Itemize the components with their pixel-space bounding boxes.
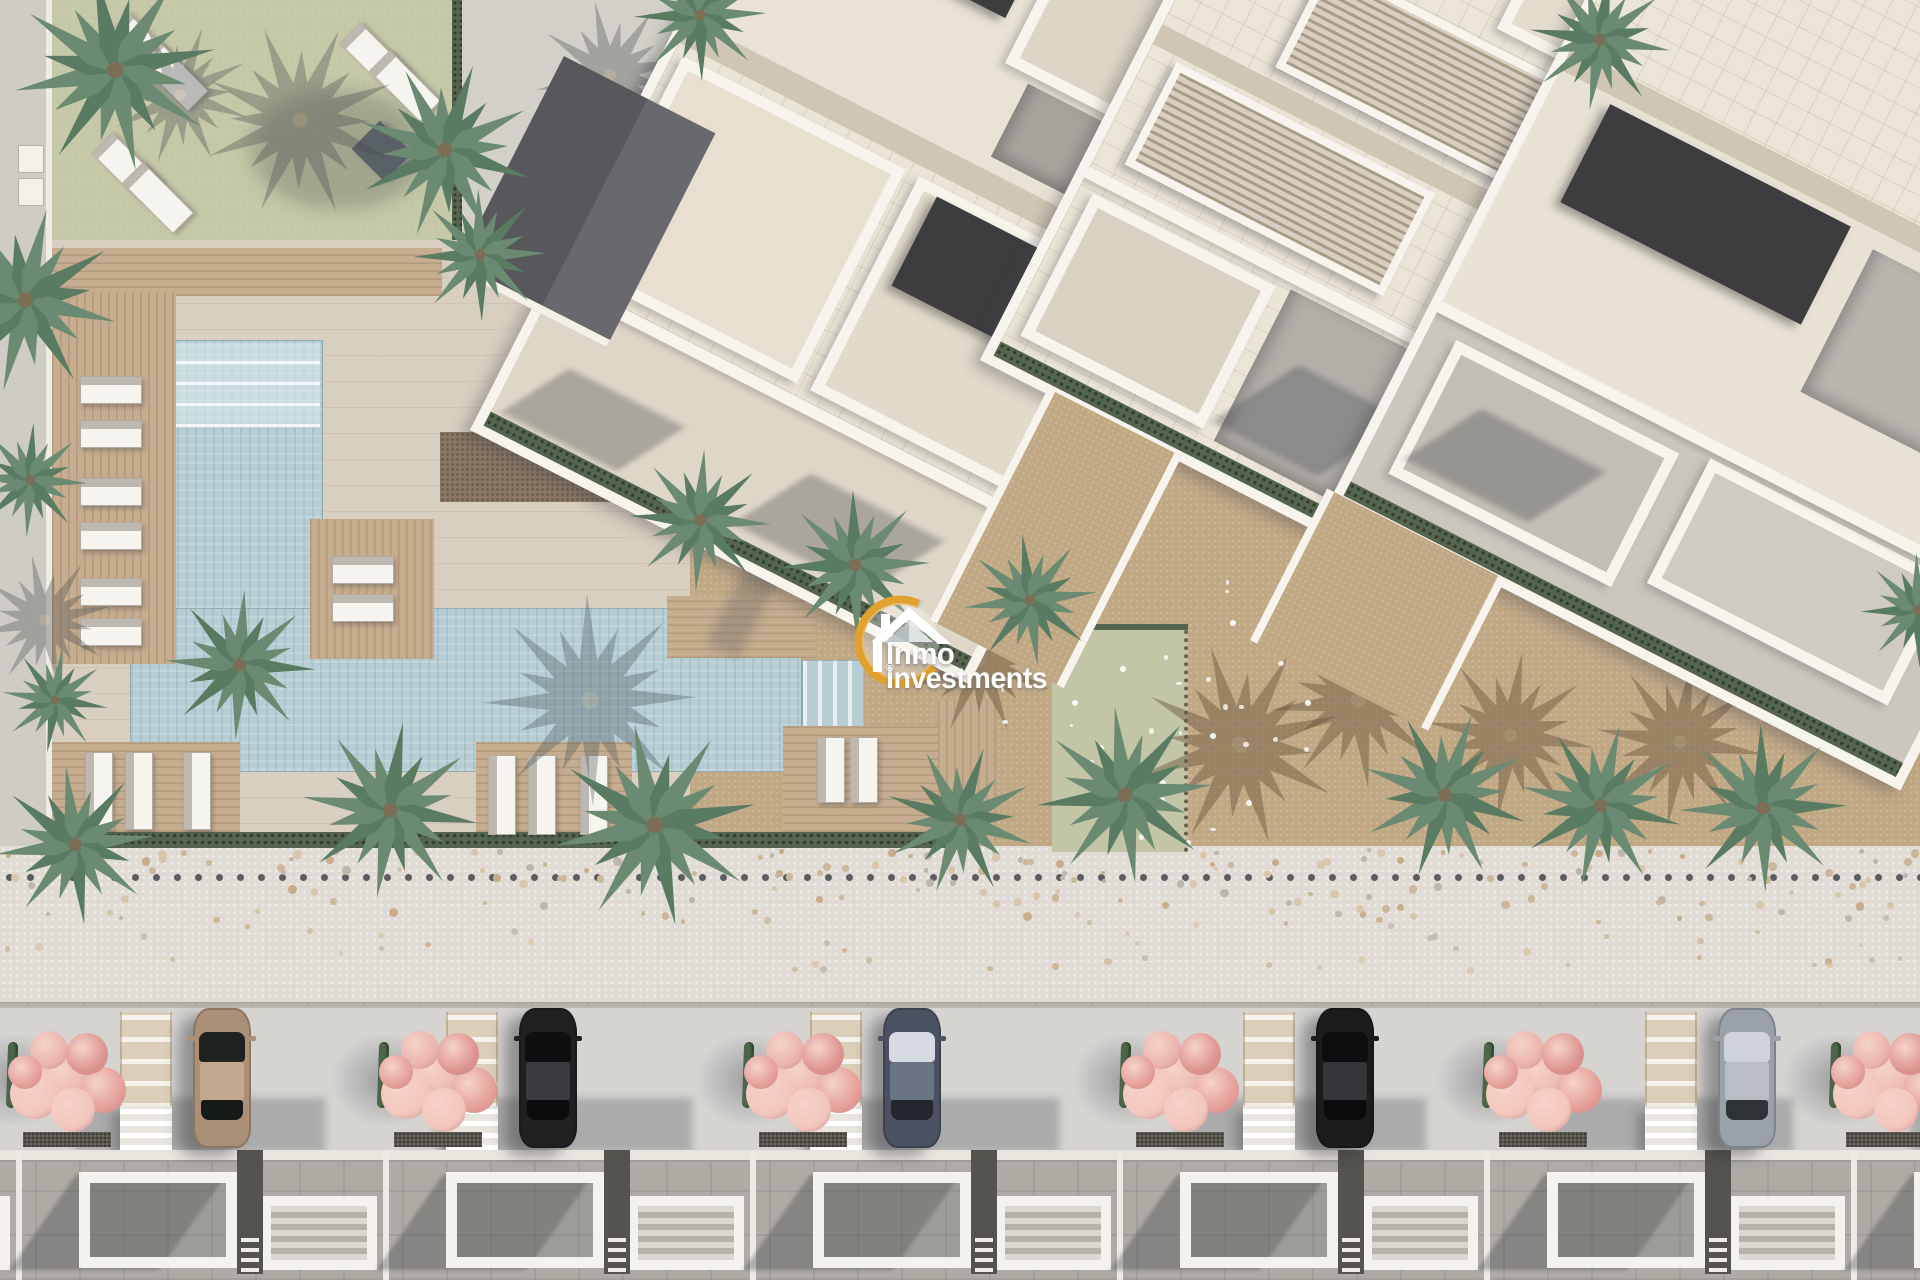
parking-access-stripes bbox=[1243, 1012, 1295, 1108]
walkway-tan-dot bbox=[1903, 873, 1908, 878]
sand-pebble bbox=[1002, 720, 1008, 724]
tree-planter bbox=[759, 1132, 847, 1147]
lounger-headrest bbox=[184, 753, 192, 829]
townhouse-unit bbox=[35, 1150, 402, 1280]
blossom-cluster bbox=[379, 1055, 413, 1089]
car-roof bbox=[1725, 1062, 1769, 1100]
walkway-dark-dot bbox=[195, 874, 202, 881]
house-front-wall bbox=[1870, 1150, 1920, 1162]
sand-pebble bbox=[1278, 661, 1284, 666]
palm-tree bbox=[0, 415, 95, 545]
walkway-tan-dot bbox=[1376, 917, 1383, 924]
blossom-cluster bbox=[787, 1088, 831, 1132]
car-rear-window bbox=[201, 1100, 243, 1120]
car-windshield bbox=[889, 1032, 935, 1062]
car-mirror bbox=[248, 1036, 256, 1041]
walkway-tan-dot bbox=[1323, 858, 1331, 866]
townhouse-unit bbox=[402, 1150, 769, 1280]
sun-lounger bbox=[332, 594, 394, 622]
walkway-tan-dot bbox=[817, 870, 823, 876]
blossom-cluster bbox=[51, 1088, 95, 1132]
walkway-tan-dot bbox=[1501, 901, 1510, 910]
car-rear-window bbox=[1324, 1100, 1366, 1120]
palm-tree bbox=[625, 0, 775, 90]
blossom-cluster bbox=[744, 1055, 778, 1089]
palm-tree bbox=[290, 710, 490, 910]
walkway-tan-dot bbox=[1087, 920, 1092, 925]
wood-deck-island bbox=[310, 519, 434, 659]
walkway-tan-dot bbox=[1697, 955, 1702, 960]
house-front-wall bbox=[1136, 1150, 1503, 1162]
blossom-cluster bbox=[1164, 1088, 1208, 1132]
walkway-tan-dot bbox=[1142, 955, 1148, 961]
car-mirror bbox=[1311, 1036, 1319, 1041]
walkway-tan-dot bbox=[1887, 902, 1894, 909]
parked-car bbox=[1718, 1008, 1776, 1148]
walkway-tan-dot bbox=[1052, 894, 1060, 902]
walkway-tan-dot bbox=[206, 860, 212, 866]
walkway-dark-dot bbox=[216, 874, 223, 881]
pergola-frame bbox=[446, 1172, 604, 1268]
lounger-headrest bbox=[333, 557, 393, 565]
house-steps bbox=[608, 1236, 626, 1272]
sand-pebble bbox=[1176, 682, 1181, 686]
parked-car bbox=[1316, 1008, 1374, 1148]
blossom-cluster bbox=[422, 1088, 466, 1132]
car-mirror bbox=[938, 1036, 946, 1041]
aerial-resort-render: Inmo Investments® bbox=[0, 0, 1920, 1280]
car-roof bbox=[526, 1062, 570, 1100]
walkway-tan-dot bbox=[1604, 934, 1609, 939]
walkway-tan-dot bbox=[1859, 849, 1864, 854]
walkway-tan-dot bbox=[1453, 946, 1458, 951]
parking-access-stripes bbox=[1645, 1012, 1697, 1108]
walkway-tan-dot bbox=[170, 957, 175, 962]
walkway-dark-dot bbox=[279, 874, 286, 881]
walkway-dark-dot bbox=[1896, 874, 1903, 881]
walkway-dark-dot bbox=[846, 874, 853, 881]
car-mirror bbox=[878, 1036, 886, 1041]
walkway-tan-dot bbox=[770, 853, 774, 857]
townhouse-unit bbox=[1870, 1150, 1920, 1280]
sand-pebble bbox=[1164, 655, 1168, 660]
parked-car bbox=[519, 1008, 577, 1148]
walkway-tan-dot bbox=[1705, 914, 1712, 921]
pergola-frame-stairs bbox=[1362, 1196, 1478, 1270]
parked-car bbox=[193, 1008, 251, 1148]
townhouse-unit bbox=[1136, 1150, 1503, 1280]
car-rear-window bbox=[527, 1100, 569, 1120]
pergola-frame-stairs bbox=[1729, 1196, 1845, 1270]
walkway-tan-dot bbox=[255, 909, 260, 914]
tree-planter bbox=[1846, 1132, 1920, 1147]
car-rear-window bbox=[891, 1100, 933, 1120]
sand-pebble bbox=[1206, 677, 1211, 682]
walkway-tan-dot bbox=[1827, 962, 1833, 968]
blossom-cluster bbox=[1484, 1055, 1518, 1089]
walkway-tan-dot bbox=[1264, 871, 1271, 878]
pergola-frame bbox=[1914, 1172, 1920, 1268]
palm-tree bbox=[405, 180, 555, 330]
house-steps bbox=[1342, 1236, 1360, 1272]
walkway-dark-dot bbox=[1329, 874, 1336, 881]
walkway-tan-dot bbox=[842, 865, 849, 872]
walkway-tan-dot bbox=[812, 961, 819, 968]
house-steps bbox=[241, 1236, 259, 1272]
walkway-tan-dot bbox=[35, 943, 42, 950]
walkway-tan-dot bbox=[1677, 916, 1682, 921]
walkway-tan-dot bbox=[1865, 877, 1871, 883]
walkway-tan-dot bbox=[816, 896, 823, 903]
walkway-dark-dot bbox=[804, 874, 811, 881]
townhouse-unit bbox=[769, 1150, 1136, 1280]
sand-pebble bbox=[1226, 580, 1229, 584]
walkway-tan-dot bbox=[1869, 957, 1875, 963]
palm-tree bbox=[1025, 695, 1225, 895]
walkway-dark-dot bbox=[1245, 874, 1252, 881]
palm-tree bbox=[875, 735, 1045, 905]
brand-name-line2-text: Investments bbox=[886, 662, 1047, 696]
tree-planter bbox=[1136, 1132, 1224, 1147]
walkway-tan-dot bbox=[1812, 963, 1816, 967]
sun-lounger bbox=[332, 556, 394, 584]
registered-mark: ® bbox=[886, 662, 893, 674]
walkway-tan-dot bbox=[379, 946, 383, 950]
car-roof bbox=[890, 1062, 934, 1100]
pergola-frame bbox=[1180, 1172, 1338, 1268]
sand-pebble bbox=[1305, 700, 1311, 706]
walkway-tan-dot bbox=[1410, 913, 1417, 920]
walkway-tan-dot bbox=[1904, 858, 1912, 866]
tree-planter bbox=[394, 1132, 482, 1147]
car-mirror bbox=[574, 1036, 582, 1041]
pergola-frame-stairs bbox=[261, 1196, 377, 1270]
palm-tree bbox=[1508, 713, 1693, 898]
walkway-tan-dot bbox=[1697, 938, 1703, 944]
walkway-tan-dot bbox=[1308, 892, 1312, 896]
walkway-tan-dot bbox=[1317, 965, 1322, 970]
walkway-tan-dot bbox=[1052, 963, 1059, 970]
car-windshield bbox=[1322, 1032, 1368, 1062]
walkway-tan-dot bbox=[1859, 943, 1863, 947]
car-rear-window bbox=[1726, 1100, 1768, 1120]
car-roof bbox=[1323, 1062, 1367, 1100]
palm-tree bbox=[0, 640, 115, 760]
sand-pebble bbox=[1246, 800, 1252, 806]
walkway-tan-dot bbox=[839, 895, 843, 899]
palm-tree bbox=[1853, 545, 1920, 675]
car-mirror bbox=[1713, 1036, 1721, 1041]
entry-stairs bbox=[1243, 1106, 1295, 1150]
blossom-cluster bbox=[1831, 1055, 1865, 1089]
walkway-tan-dot bbox=[1269, 908, 1275, 914]
blossom-cluster bbox=[1527, 1088, 1571, 1132]
pergola-frame-stairs bbox=[995, 1196, 1111, 1270]
pergola-frame bbox=[79, 1172, 237, 1268]
walkway-tan-dot bbox=[497, 849, 503, 855]
walkway-dark-dot bbox=[258, 874, 265, 881]
sand-pebble bbox=[1120, 666, 1126, 672]
pergola-frame-stairs bbox=[0, 1196, 10, 1270]
sun-lounger bbox=[183, 752, 211, 830]
house-front-wall bbox=[35, 1150, 402, 1162]
palm-tree bbox=[540, 710, 770, 940]
walkway-tan-dot bbox=[1135, 941, 1140, 946]
walkway-tan-dot bbox=[1366, 894, 1372, 900]
walkway-dark-dot bbox=[867, 874, 874, 881]
lounger-headrest bbox=[333, 595, 393, 603]
walkway-tan-dot bbox=[493, 874, 500, 881]
walkway-tan-dot bbox=[820, 966, 827, 973]
blossom-cluster bbox=[437, 1033, 479, 1075]
car-mirror bbox=[1773, 1036, 1781, 1041]
lounger-headrest bbox=[818, 738, 826, 802]
watermark-logo: Inmo Investments® bbox=[845, 592, 1115, 697]
parking-access-stripes bbox=[120, 1012, 172, 1108]
walkway-dark-dot bbox=[1287, 874, 1294, 881]
entry-stairs bbox=[1645, 1106, 1697, 1150]
car-mirror bbox=[188, 1036, 196, 1041]
pergola-frame bbox=[813, 1172, 971, 1268]
palm-tree bbox=[0, 0, 230, 185]
walkway-tan-dot bbox=[307, 928, 313, 934]
walkway-tan-dot bbox=[213, 917, 219, 923]
walkway-tan-dot bbox=[519, 880, 528, 889]
walkway-tan-dot bbox=[987, 966, 992, 971]
palm-tree bbox=[0, 195, 130, 405]
pool-entry-steps bbox=[170, 343, 320, 427]
sun-lounger bbox=[817, 737, 845, 803]
lounger-headrest bbox=[851, 738, 859, 802]
sand-pebble bbox=[1239, 705, 1243, 708]
walkway-tan-dot bbox=[779, 849, 784, 854]
blossom-cluster bbox=[1121, 1055, 1155, 1089]
walkway-tan-dot bbox=[1467, 967, 1473, 973]
walkway-dark-dot bbox=[1224, 874, 1231, 881]
walkway-tan-dot bbox=[1845, 915, 1852, 922]
tree-planter bbox=[1499, 1132, 1587, 1147]
walkway-dark-dot bbox=[237, 874, 244, 881]
walkway-tan-dot bbox=[1898, 956, 1903, 961]
pergola-frame bbox=[1547, 1172, 1705, 1268]
walkway-dark-dot bbox=[1308, 874, 1315, 881]
palm-tree bbox=[620, 440, 780, 600]
sun-lounger bbox=[850, 737, 878, 803]
walkway-tan-dot bbox=[1193, 922, 1199, 928]
townhouse-unit bbox=[1503, 1150, 1870, 1280]
walkway-tan-dot bbox=[1856, 902, 1865, 911]
car-windshield bbox=[199, 1032, 245, 1062]
walkway-tan-dot bbox=[1427, 935, 1433, 941]
walkway-dark-dot bbox=[174, 874, 181, 881]
blossom-cluster bbox=[1179, 1033, 1221, 1075]
blossom-cluster bbox=[1874, 1088, 1918, 1132]
car-windshield bbox=[525, 1032, 571, 1062]
blossom-cluster bbox=[8, 1055, 42, 1089]
entry-stairs bbox=[120, 1106, 172, 1150]
walkway-tan-dot bbox=[775, 873, 780, 878]
house-front-wall bbox=[402, 1150, 769, 1162]
walkway-tan-dot bbox=[1330, 890, 1339, 899]
walkway-tan-dot bbox=[824, 940, 830, 946]
car-mirror bbox=[514, 1036, 522, 1041]
walkway-tan-dot bbox=[823, 863, 831, 871]
walkway-tan-dot bbox=[792, 967, 797, 972]
house-front-wall bbox=[769, 1150, 1136, 1162]
house-steps bbox=[975, 1236, 993, 1272]
palm-tree bbox=[0, 755, 165, 935]
walkway-tan-dot bbox=[866, 957, 873, 964]
sand-pebble bbox=[1230, 620, 1236, 626]
walkway-tan-dot bbox=[339, 951, 343, 955]
pergola-frame-stairs bbox=[628, 1196, 744, 1270]
blossom-cluster bbox=[802, 1033, 844, 1075]
blossom-cluster bbox=[1542, 1033, 1584, 1075]
walkway-dark-dot bbox=[531, 874, 538, 881]
parked-car bbox=[883, 1008, 941, 1148]
walkway-dark-dot bbox=[1875, 874, 1882, 881]
walkway-tan-dot bbox=[1397, 904, 1404, 911]
walkway-tan-dot bbox=[1335, 911, 1341, 917]
house-front-wall bbox=[1503, 1150, 1870, 1162]
walkway-tan-dot bbox=[1118, 898, 1123, 903]
car-roof bbox=[200, 1062, 244, 1100]
car-mirror bbox=[1371, 1036, 1379, 1041]
walkway-tan-dot bbox=[277, 864, 285, 872]
walkway-dark-dot bbox=[825, 874, 832, 881]
walkway-dark-dot bbox=[510, 874, 517, 881]
walkway-tan-dot bbox=[1359, 956, 1365, 962]
tree-planter bbox=[23, 1132, 111, 1147]
palm-tree bbox=[1520, 0, 1680, 120]
house-steps bbox=[1709, 1236, 1727, 1272]
blossom-cluster bbox=[66, 1033, 108, 1075]
walkway-tan-dot bbox=[1228, 862, 1234, 868]
walkway-tan-dot bbox=[245, 924, 250, 929]
walkway-tan-dot bbox=[1755, 930, 1760, 935]
walkway-tan-dot bbox=[1859, 881, 1866, 888]
palm-tree bbox=[1668, 713, 1858, 903]
walkway-tan-dot bbox=[5, 946, 11, 952]
car-windshield bbox=[1724, 1032, 1770, 1062]
walkway-tan-dot bbox=[511, 928, 518, 935]
